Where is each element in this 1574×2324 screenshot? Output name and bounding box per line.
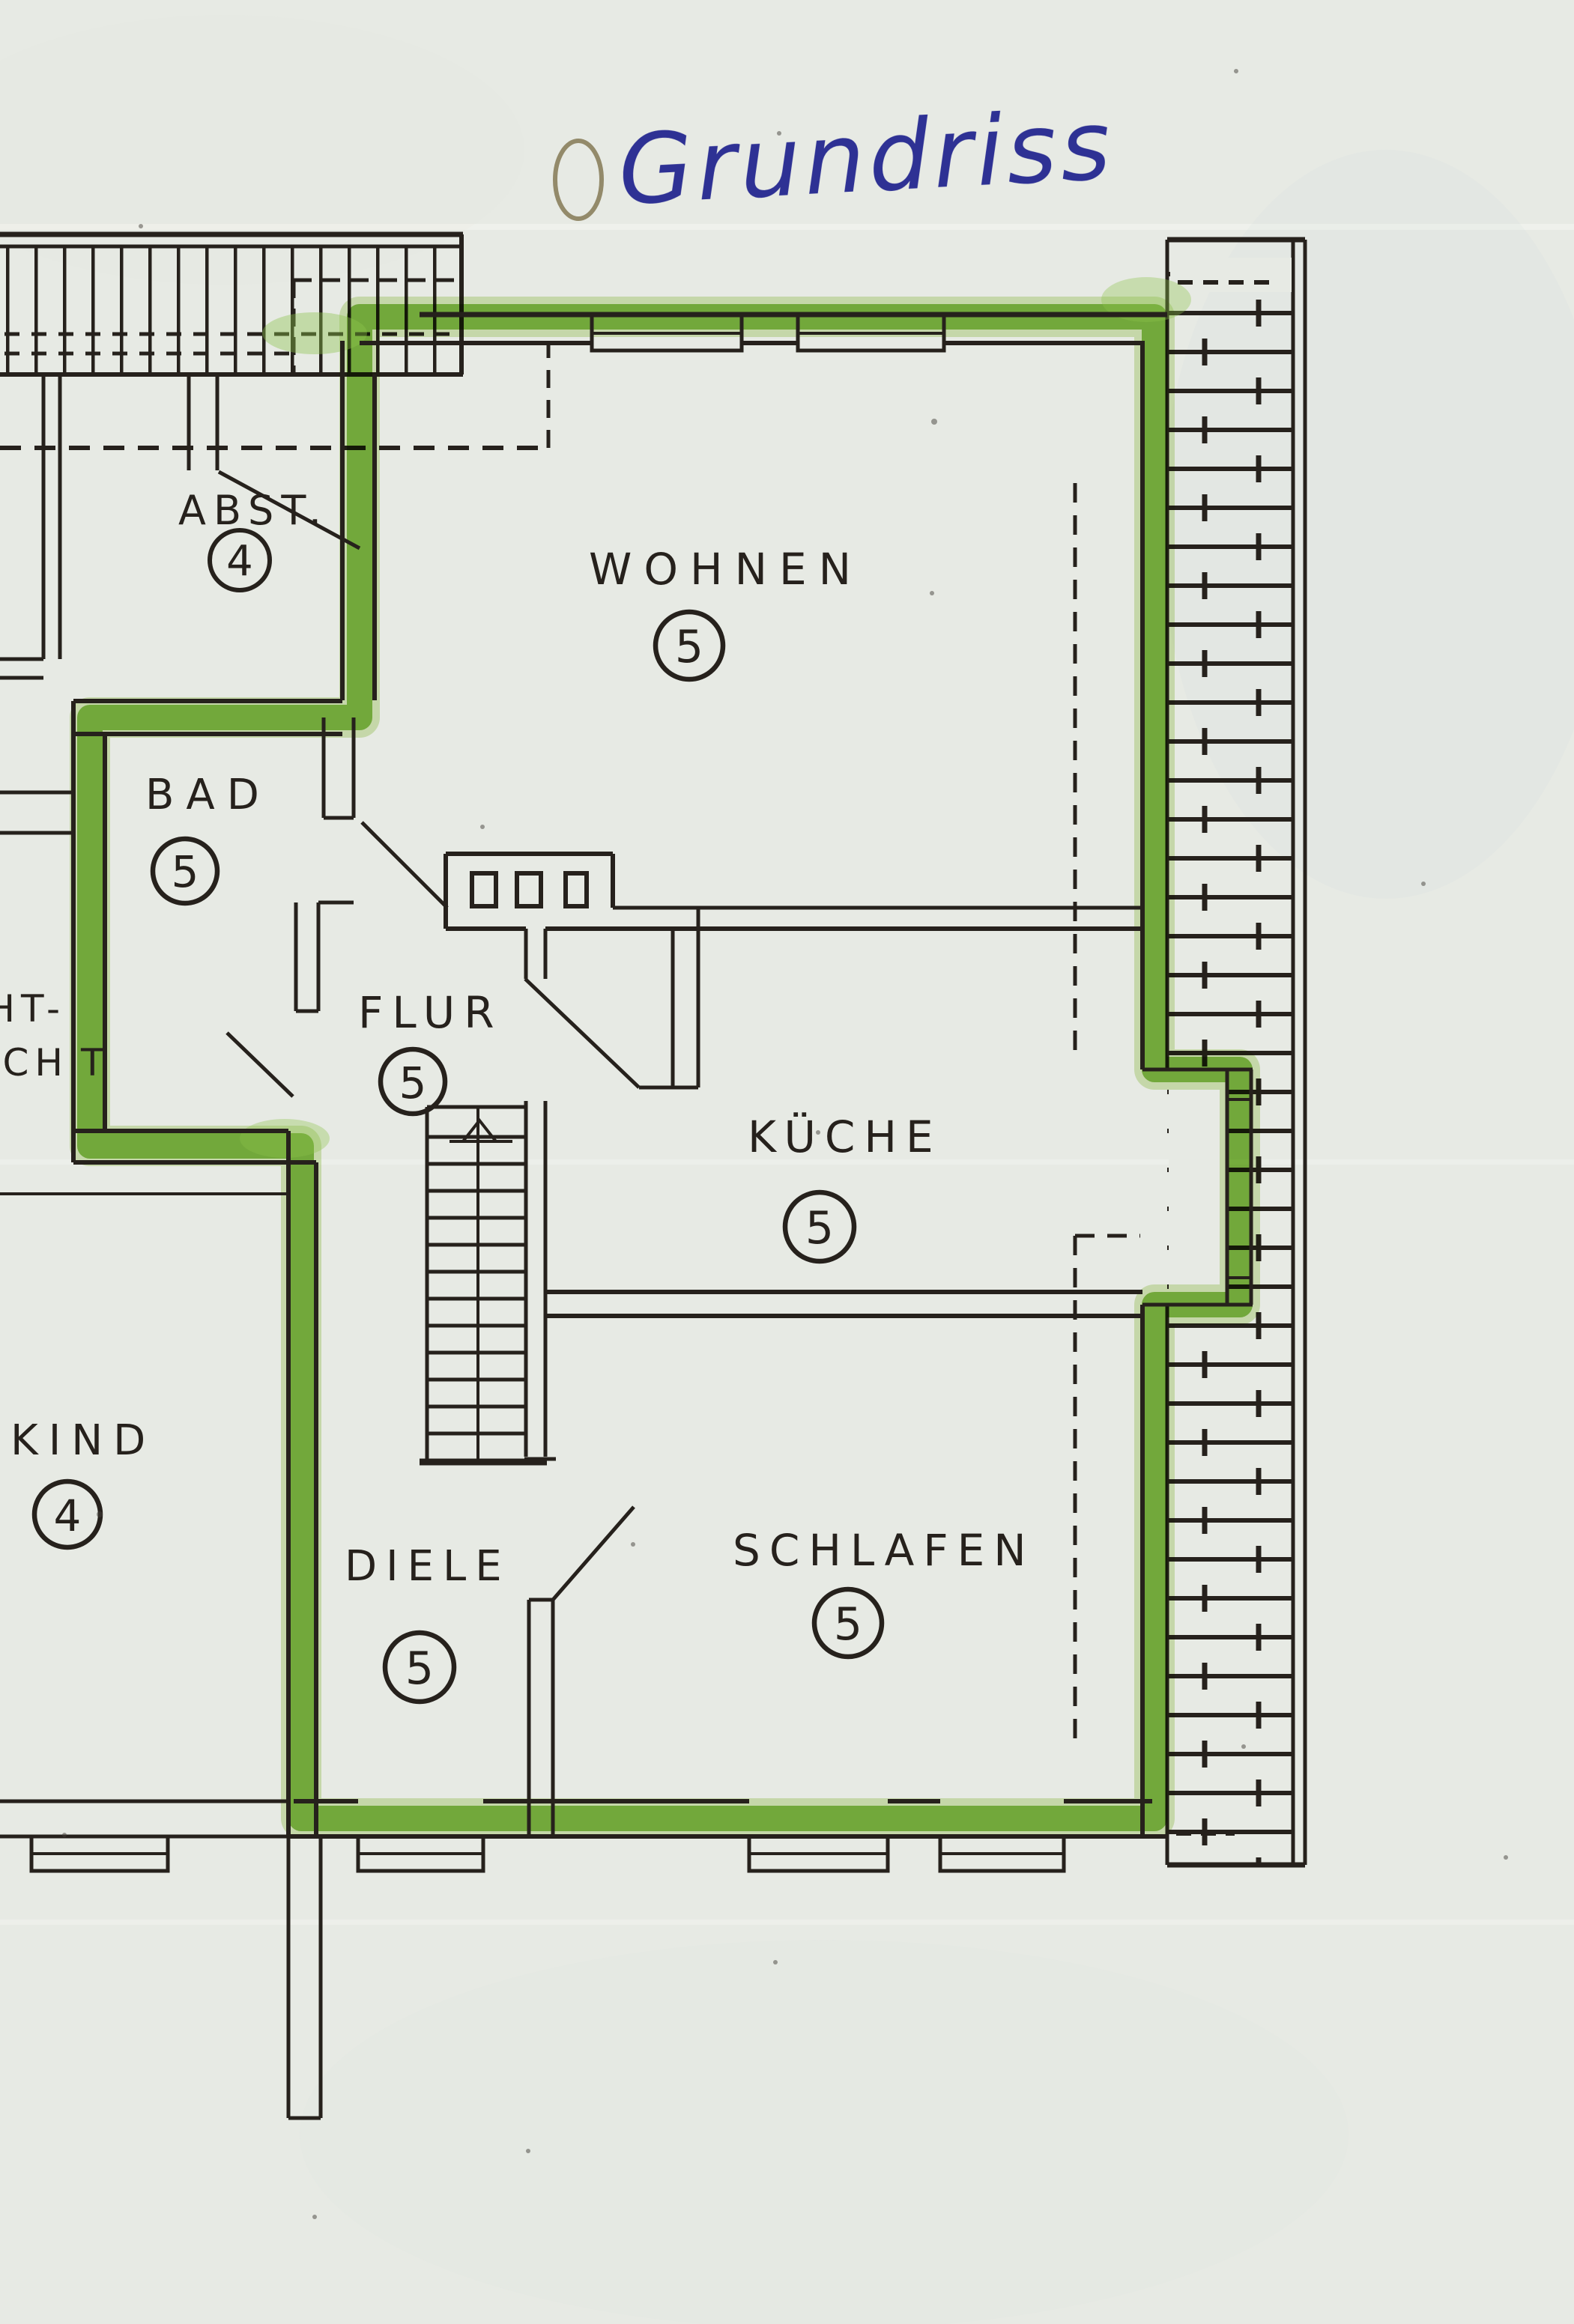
floorplan-drawing: Grundriss bbox=[0, 0, 1574, 2324]
room-number-diele: 5 bbox=[405, 1642, 434, 1695]
room-number-bad: 5 bbox=[172, 846, 199, 897]
room-label-bad: BAD bbox=[145, 771, 271, 819]
scanned-floor-plan-page: Grundriss bbox=[0, 0, 1574, 2324]
room-label-flur: FLUR bbox=[358, 987, 503, 1038]
room-number-flur: 5 bbox=[399, 1058, 427, 1108]
room-label-wohnen: WOHNEN bbox=[589, 544, 863, 595]
room-label-kueche: KÜCHE bbox=[748, 1111, 942, 1162]
room-number-wohnen: 5 bbox=[675, 621, 703, 673]
room-label-schlafen: SCHLAFEN bbox=[733, 1525, 1035, 1576]
room-label-diele: DIELE bbox=[345, 1542, 511, 1591]
room-number-abst: 4 bbox=[226, 537, 253, 586]
svg-text:T: T bbox=[80, 1041, 104, 1084]
room-label-abst: ABST. bbox=[178, 487, 329, 534]
room-number-kueche: 5 bbox=[805, 1202, 834, 1254]
room-number-kind: 4 bbox=[54, 1490, 82, 1541]
svg-text:HT-: HT- bbox=[0, 987, 66, 1031]
room-label-kind: KIND bbox=[10, 1416, 156, 1465]
room-number-schlafen: 5 bbox=[834, 1598, 862, 1651]
svg-text:ACH: ACH bbox=[0, 1041, 69, 1084]
